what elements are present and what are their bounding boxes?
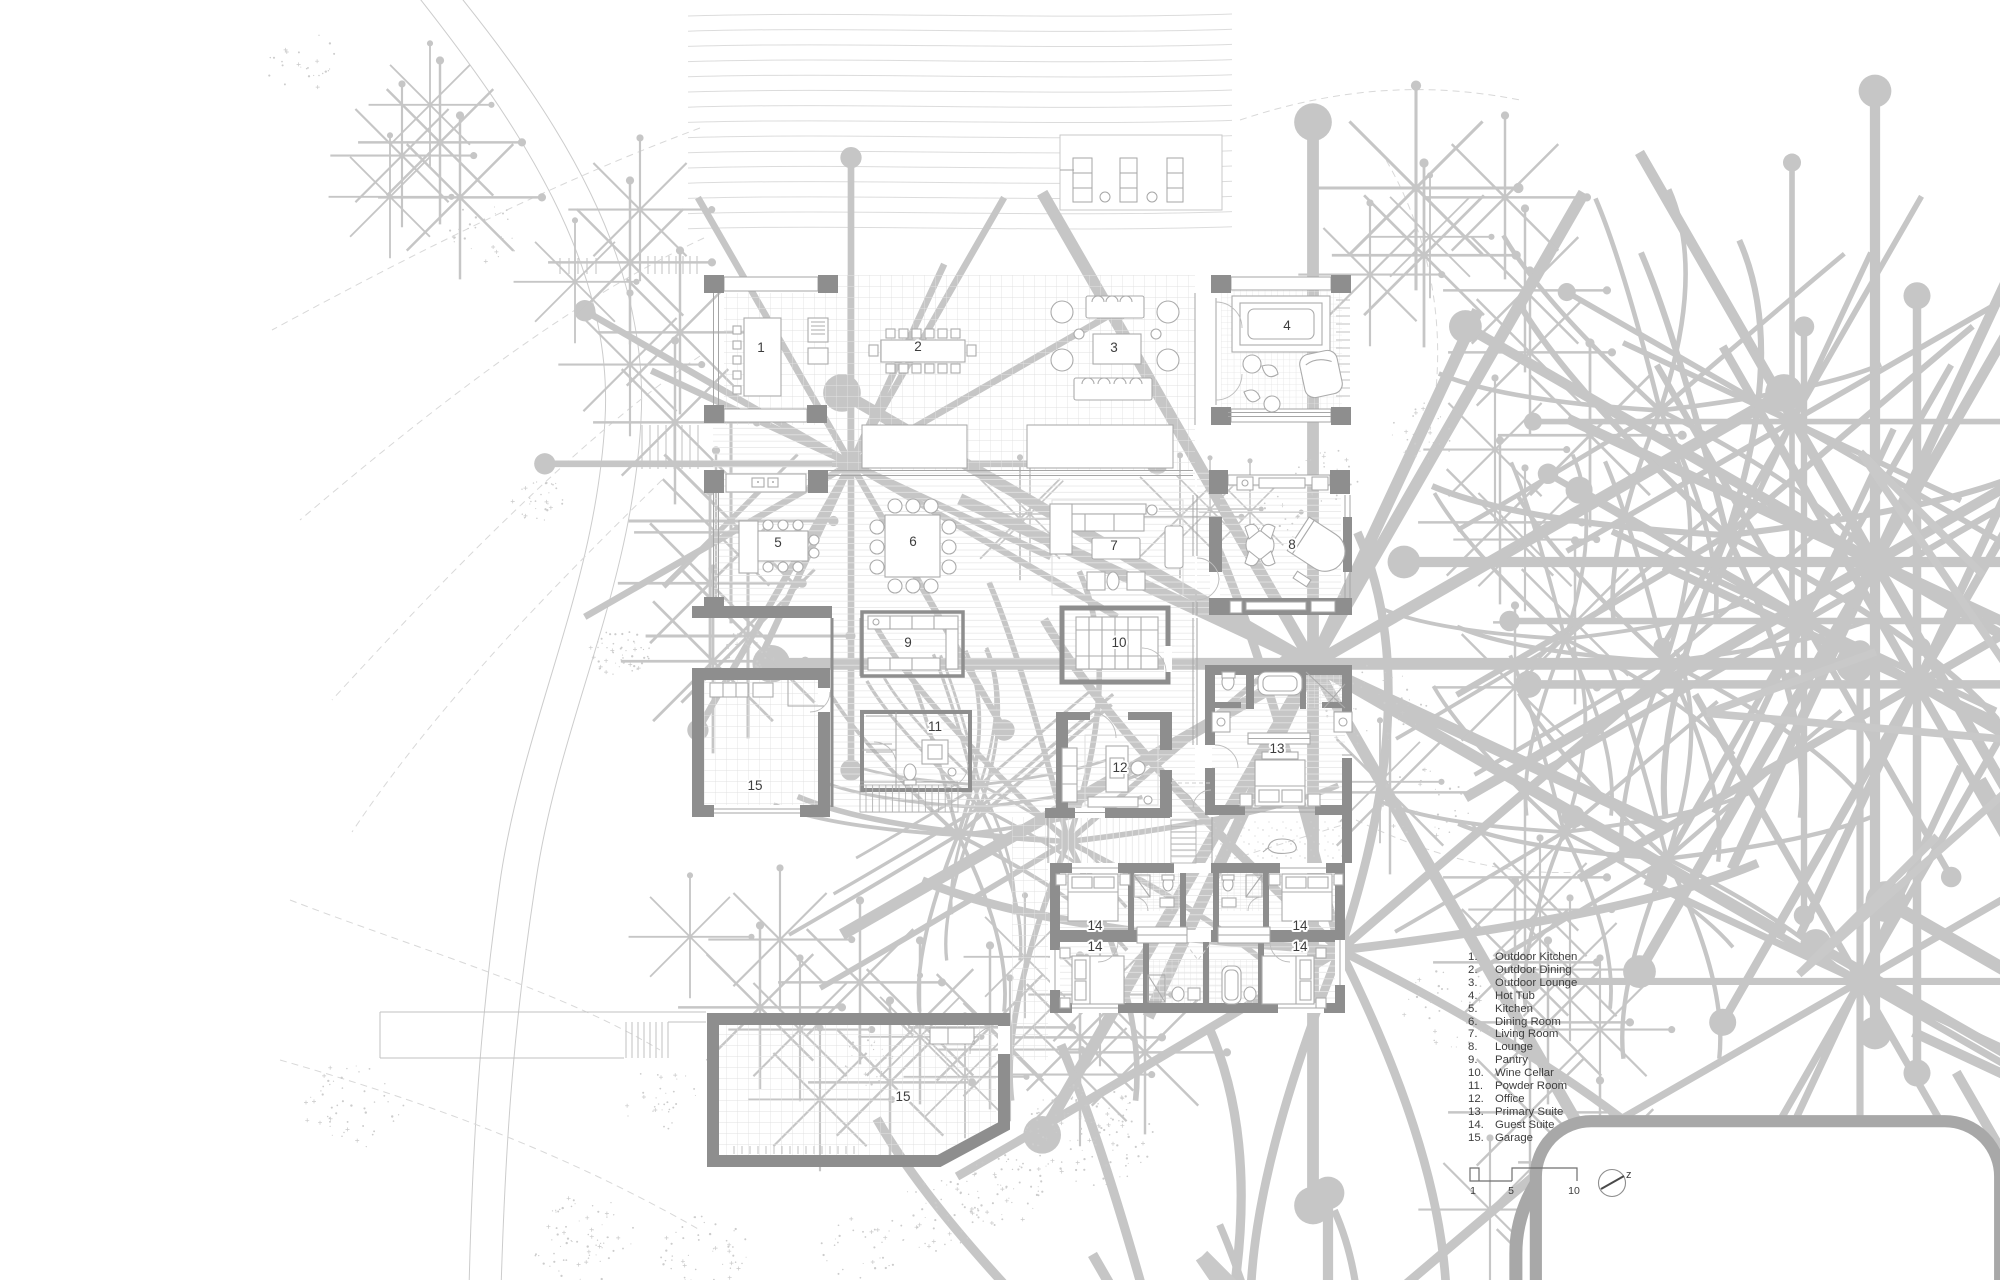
room-number-label-dining-room: 6: [909, 534, 917, 549]
room-number-label-wine-cellar: 10: [1111, 635, 1126, 650]
legend-item: 13.Primary Suite: [1468, 1106, 1577, 1119]
garden-shed: [1060, 135, 1222, 210]
ground-speckles: [589, 631, 650, 675]
legend-item-number: 6.: [1468, 1016, 1495, 1029]
legend-item-label: Garage: [1495, 1132, 1533, 1145]
north-label: z: [1626, 1169, 1632, 1181]
ground-speckles: [268, 35, 335, 89]
room-number-label-living-room: 7: [1110, 538, 1118, 553]
tree-icon: [1423, 374, 1570, 521]
legend-item-number: 5.: [1468, 1003, 1495, 1016]
legend-item-label: Powder Room: [1495, 1080, 1567, 1093]
legend-item-label: Living Room: [1495, 1028, 1558, 1041]
tree-icon: [358, 56, 526, 224]
legend-item-number: 9.: [1468, 1054, 1495, 1067]
legend-item-number: 11.: [1468, 1080, 1495, 1093]
room-number-label-pantry: 9: [904, 635, 912, 650]
legend-item-label: Office: [1495, 1093, 1525, 1106]
tree-icon: [708, 864, 855, 1011]
legend: 1.Outdoor Kitchen2.Outdoor Dining3.Outdo…: [1468, 951, 1577, 1145]
legend-item-label: Outdoor Dining: [1495, 964, 1572, 977]
tree-icon: [330, 80, 477, 227]
legend-item-number: 10.: [1468, 1067, 1495, 1080]
legend-item: 1.Outdoor Kitchen: [1468, 951, 1577, 964]
driveway-walk: [380, 1012, 706, 1058]
tree-icon: [1369, 172, 1495, 298]
legend-item-number: 12.: [1468, 1093, 1495, 1106]
tree-icon: [568, 134, 715, 281]
legend-item: 8.Lounge: [1468, 1041, 1577, 1054]
legend-item-label: Kitchen: [1495, 1003, 1533, 1016]
legend-item: 4.Hot Tub: [1468, 990, 1577, 1003]
legend-item: 2.Outdoor Dining: [1468, 964, 1577, 977]
tree-icon: [514, 217, 640, 343]
legend-item-label: Lounge: [1495, 1041, 1533, 1054]
legend-item: 11.Powder Room: [1468, 1080, 1577, 1093]
tree-icon: [629, 872, 755, 998]
floor-plan-drawing: 12345678910111213141414141515 1 5 10 z: [0, 0, 2000, 1280]
room-number-label-outdoor-kitchen: 1: [757, 340, 765, 355]
ground-speckles: [304, 1065, 404, 1147]
legend-item: 12.Office: [1468, 1093, 1577, 1106]
ground-speckles: [821, 1217, 894, 1279]
legend-item-number: 7.: [1468, 1028, 1495, 1041]
legend-item: 6.Dining Room: [1468, 1016, 1577, 1029]
scale-label-1: 1: [1470, 1185, 1476, 1197]
scale-label-10: 10: [1568, 1185, 1580, 1197]
scale-label-5: 5: [1508, 1185, 1514, 1197]
legend-item-number: 13.: [1468, 1106, 1495, 1119]
legend-item-number: 4.: [1468, 990, 1495, 1003]
legend-item: 7.Living Room: [1468, 1028, 1577, 1041]
legend-item-label: Pantry: [1495, 1054, 1528, 1067]
room-number-label-guest-suite: 14: [1087, 918, 1103, 933]
legend-item-label: Hot Tub: [1495, 990, 1535, 1003]
room-number-label-guest-suite: 14: [1292, 918, 1308, 933]
legend-item: 9.Pantry: [1468, 1054, 1577, 1067]
legend-item-label: Outdoor Kitchen: [1495, 951, 1577, 964]
room-number-label-garage: 15: [895, 1089, 910, 1104]
legend-item: 10.Wine Cellar: [1468, 1067, 1577, 1080]
room-number-label-hot-tub: 4: [1283, 318, 1291, 333]
legend-item: 5.Kitchen: [1468, 1003, 1577, 1016]
legend-item-number: 15.: [1468, 1132, 1495, 1145]
room-number-label-office: 12: [1112, 760, 1127, 775]
legend-item-label: Outdoor Lounge: [1495, 977, 1577, 990]
room-number-label-lounge: 8: [1288, 537, 1296, 552]
tree-icon: [329, 132, 455, 258]
room-number-label-outdoor-lounge: 3: [1110, 340, 1118, 355]
ground-speckles: [660, 1216, 746, 1280]
legend-item-label: Wine Cellar: [1495, 1067, 1554, 1080]
room-number-label-powder-room: 11: [928, 719, 942, 734]
room-number-label-guest-suite: 14: [1087, 939, 1103, 954]
room-number-label-kitchen: 5: [774, 535, 782, 550]
legend-item-number: 2.: [1468, 964, 1495, 977]
room-number-label-primary-suite: 13: [1269, 741, 1284, 756]
legend-item: 14.Guest Suite: [1468, 1119, 1577, 1132]
legend-item: 3.Outdoor Lounge: [1468, 977, 1577, 990]
site-plan-page: 12345678910111213141414141515 1 5 10 z 1…: [0, 0, 2000, 1280]
legend-item-number: 8.: [1468, 1041, 1495, 1054]
tree-icon: [1443, 204, 1611, 372]
legend-item-label: Dining Room: [1495, 1016, 1561, 1029]
legend-item: 15.Garage: [1468, 1132, 1577, 1145]
ground-speckles: [625, 1073, 696, 1129]
legend-item-label: Primary Suite: [1495, 1106, 1563, 1119]
legend-item-number: 14.: [1468, 1119, 1495, 1132]
ground-speckles: [535, 1196, 634, 1280]
ground-speckles: [511, 481, 564, 520]
room-number-label-outdoor-dining: 2: [914, 339, 922, 354]
tree-icon: [369, 40, 495, 166]
room-number-label-guest-suite: 14: [1292, 939, 1308, 954]
truck-detached-garage: [1536, 1121, 2000, 1280]
room-number-label-garage: 15: [747, 778, 762, 793]
legend-item-number: 1.: [1468, 951, 1495, 964]
legend-item-number: 3.: [1468, 977, 1495, 990]
legend-item-label: Guest Suite: [1495, 1119, 1555, 1132]
